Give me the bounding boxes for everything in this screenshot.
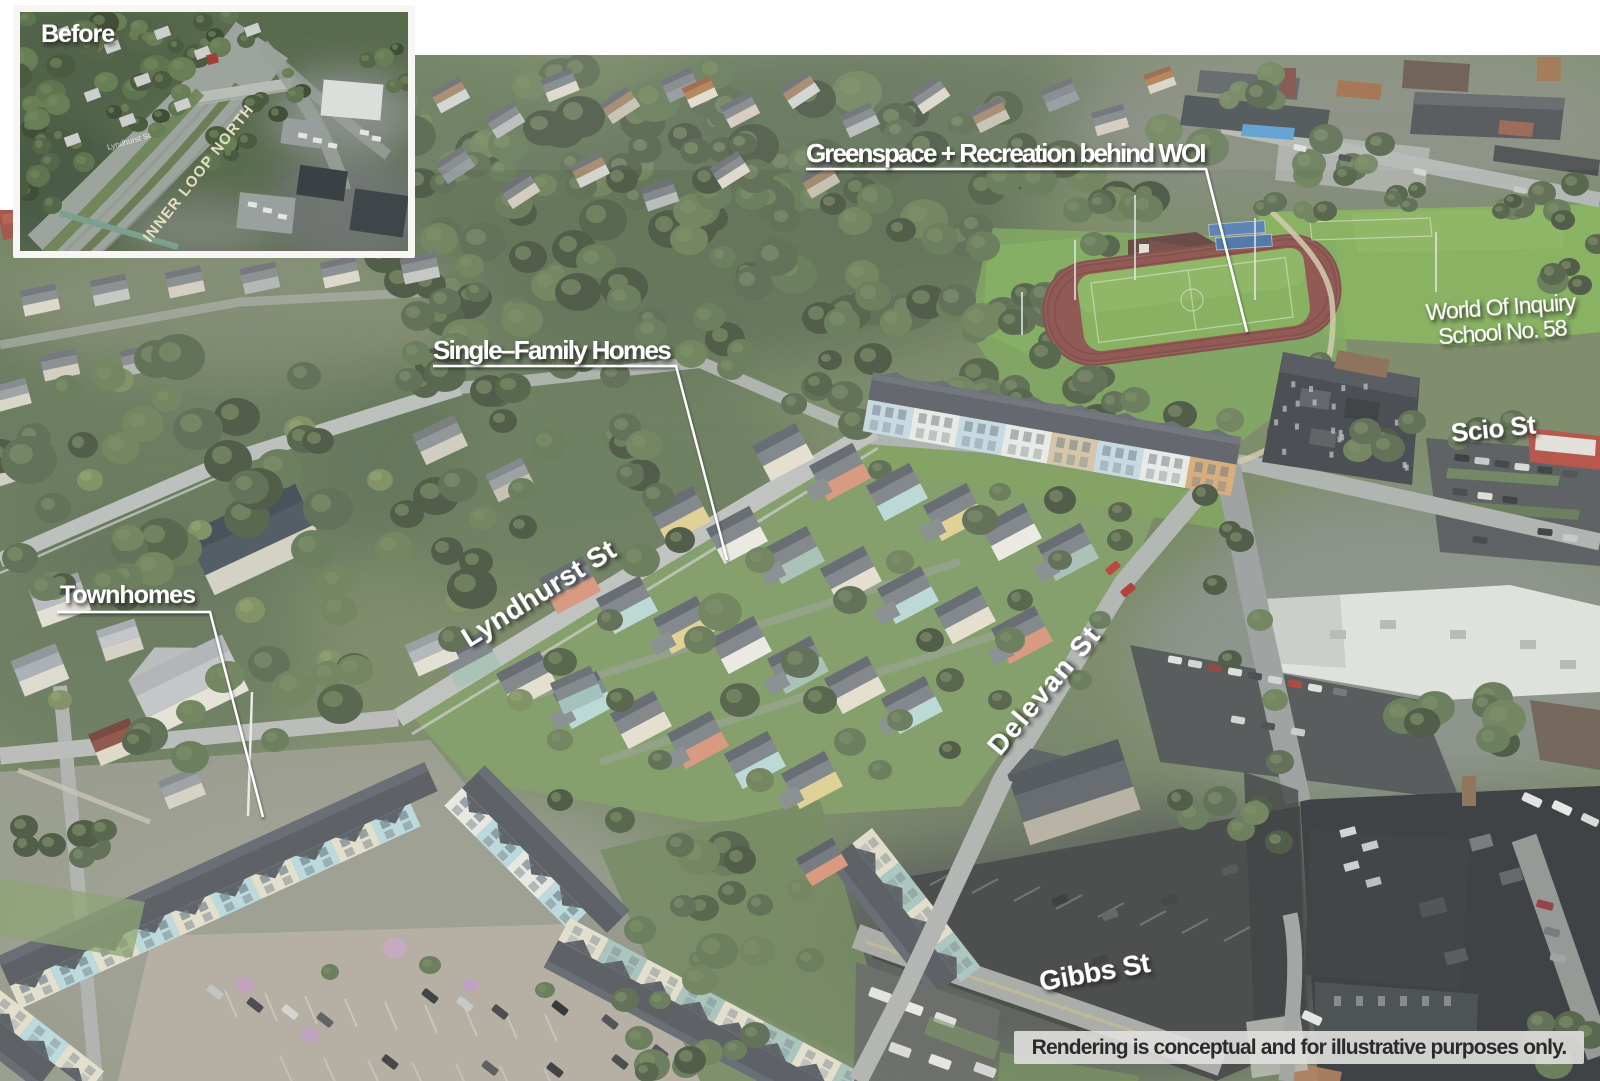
svg-text:Townhomes: Townhomes [60, 581, 195, 609]
svg-text:Single–Family Homes: Single–Family Homes [433, 335, 671, 365]
svg-text:Before: Before [41, 20, 115, 48]
svg-text:Greenspace + Recreation behind: Greenspace + Recreation behind WOI [806, 138, 1205, 168]
svg-text:Rendering is conceptual and fo: Rendering is conceptual and for illustra… [1032, 1036, 1567, 1059]
